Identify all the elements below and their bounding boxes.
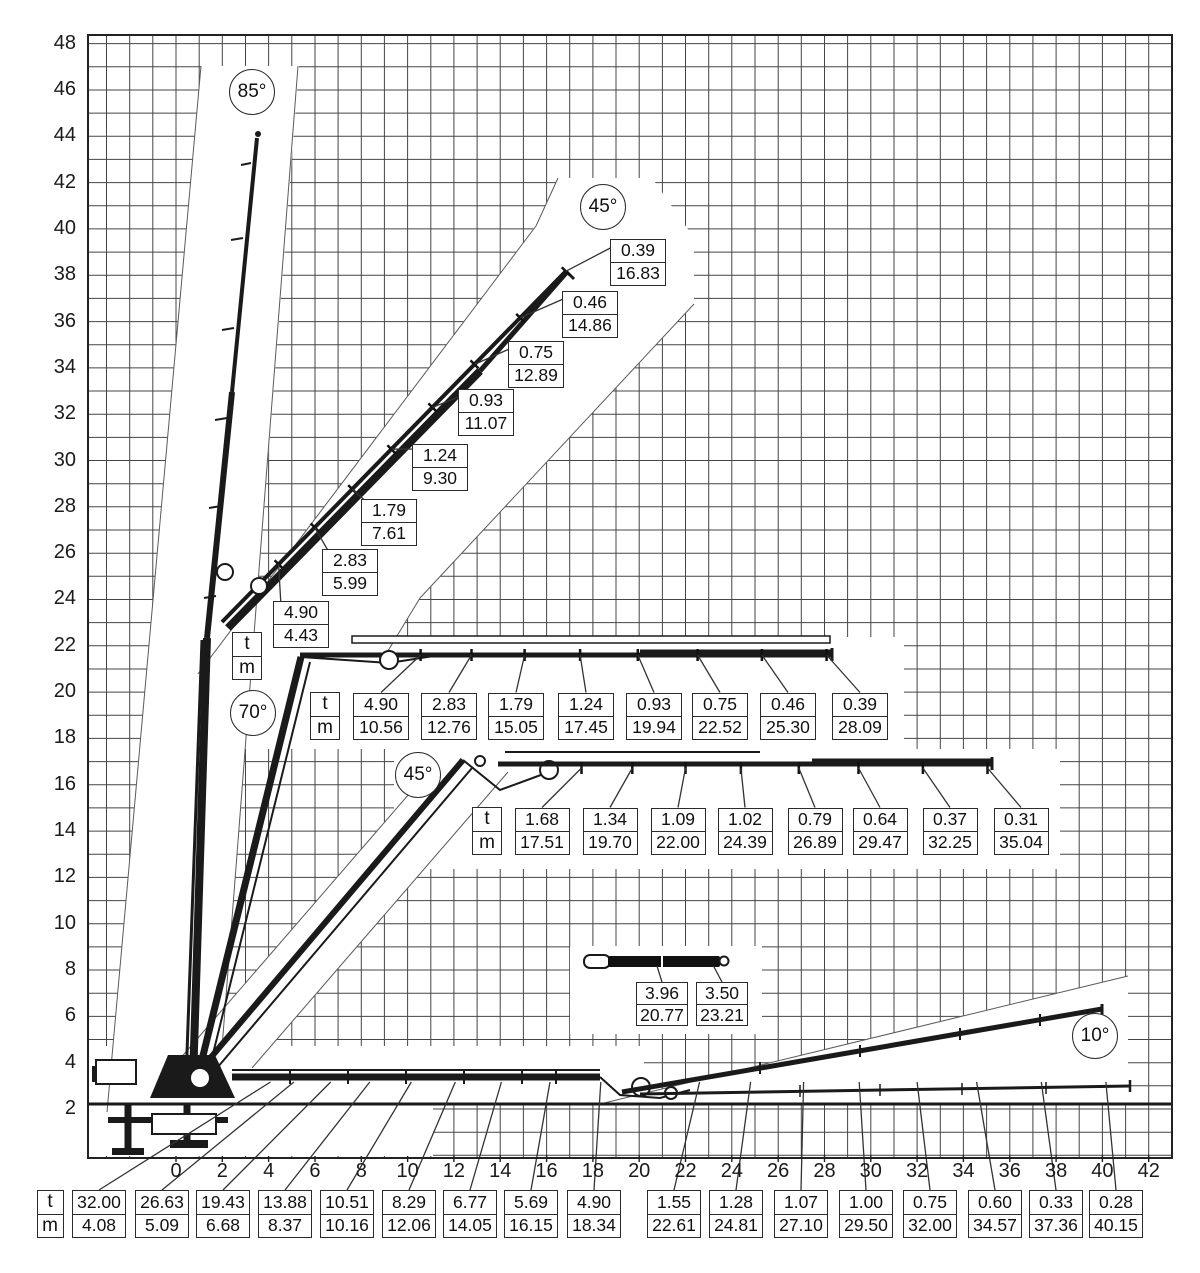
load-box: 3.9620.77 [636, 982, 688, 1026]
load-box: 1.0029.50 [839, 1190, 893, 1238]
load-value-t: 0.75 [693, 694, 747, 717]
y-tick-label: 48 [28, 32, 76, 55]
load-value-m: 23.21 [697, 1005, 747, 1026]
angle-badge: 70° [230, 690, 276, 736]
x-tick-label: 30 [847, 1160, 895, 1183]
load-box: 0.3928.09 [832, 693, 888, 740]
load-value-t: 0.31 [995, 809, 1048, 832]
angle-badge: 45° [395, 752, 441, 798]
load-value-m: 22.52 [693, 717, 747, 739]
angle-badge: 85° [229, 69, 275, 115]
y-tick-label: 26 [28, 541, 76, 564]
load-box: 2.835.99 [322, 549, 378, 596]
load-box: 0.7522.52 [692, 693, 748, 740]
y-tick-label: 34 [28, 356, 76, 379]
load-value-t: 19.43 [197, 1191, 249, 1215]
unit-legend-box: tm [232, 632, 262, 680]
load-value-t: 10.51 [321, 1191, 373, 1215]
load-box: 1.2417.45 [558, 693, 614, 740]
load-value-m: 16.15 [505, 1215, 557, 1238]
load-value-m: 16.83 [611, 263, 665, 285]
x-tick-label: 10 [384, 1160, 432, 1183]
load-value-t: 4.90 [274, 602, 328, 625]
x-tick-label: 18 [569, 1160, 617, 1183]
x-tick-label: 38 [1032, 1160, 1080, 1183]
load-box: 1.3419.70 [583, 808, 638, 855]
y-tick-label: 30 [28, 449, 76, 472]
x-tick-label: 26 [754, 1160, 802, 1183]
load-box: 26.635.09 [135, 1190, 189, 1238]
load-box: 3.5023.21 [696, 982, 748, 1026]
load-value-t: 5.69 [505, 1191, 557, 1215]
load-box: 1.5522.61 [647, 1190, 701, 1238]
load-box: 0.7926.89 [788, 808, 843, 855]
y-tick-label: 36 [28, 310, 76, 333]
load-box: 0.6034.57 [968, 1190, 1022, 1238]
load-value-m: 29.50 [840, 1215, 892, 1238]
load-box: 32.004.08 [72, 1190, 126, 1238]
load-value-m: 29.47 [854, 832, 907, 854]
x-tick-label: 2 [198, 1160, 246, 1183]
x-tick-label: 8 [337, 1160, 385, 1183]
load-box: 4.904.43 [273, 601, 329, 648]
y-tick-label: 8 [28, 958, 76, 981]
load-value-m: 22.00 [652, 832, 705, 854]
load-value-t: 0.39 [611, 240, 665, 263]
load-box: 6.7714.05 [443, 1190, 497, 1238]
load-value-t: 0.46 [761, 694, 815, 717]
load-value-m: 5.09 [136, 1215, 188, 1238]
load-box: 10.5110.16 [320, 1190, 374, 1238]
load-box: 0.4614.86 [562, 291, 618, 338]
load-value-t: 0.75 [904, 1191, 956, 1215]
load-box: 19.436.68 [196, 1190, 250, 1238]
y-tick-label: 38 [28, 263, 76, 286]
load-box: 13.888.37 [258, 1190, 312, 1238]
load-box: 0.4625.30 [760, 693, 816, 740]
load-value-m: 26.89 [789, 832, 842, 854]
load-value-t: 3.96 [637, 983, 687, 1005]
unit-m-label: m [233, 657, 261, 680]
x-tick-label: 34 [939, 1160, 987, 1183]
load-box: 1.0727.10 [774, 1190, 828, 1238]
load-value-m: 9.30 [413, 468, 467, 490]
load-value-t: 1.28 [710, 1191, 762, 1215]
x-tick-label: 0 [152, 1160, 200, 1183]
load-value-m: 12.76 [422, 717, 476, 739]
y-tick-label: 18 [28, 726, 76, 749]
unit-m-label: m [38, 1215, 63, 1238]
load-value-m: 8.37 [259, 1215, 311, 1238]
y-tick-label: 40 [28, 217, 76, 240]
load-value-t: 0.60 [969, 1191, 1021, 1215]
unit-legend-box: tm [37, 1190, 64, 1238]
load-value-t: 1.34 [584, 809, 637, 832]
x-tick-label: 20 [615, 1160, 663, 1183]
x-tick-label: 28 [800, 1160, 848, 1183]
load-value-t: 2.83 [323, 550, 377, 573]
load-value-t: 0.28 [1090, 1191, 1142, 1215]
load-box: 0.9311.07 [458, 389, 514, 436]
angle-badge: 10° [1072, 1013, 1118, 1059]
load-value-m: 22.61 [648, 1215, 700, 1238]
unit-t-label: t [311, 693, 339, 717]
load-box: 1.0922.00 [651, 808, 706, 855]
y-tick-label: 46 [28, 78, 76, 101]
labels-layer: 4846444240383634323028262422201816141210… [0, 0, 1200, 1273]
load-box: 0.7512.89 [508, 341, 564, 388]
unit-legend-box: tm [472, 807, 502, 855]
load-value-m: 12.06 [383, 1215, 435, 1238]
load-box: 0.3916.83 [610, 239, 666, 286]
x-tick-label: 12 [430, 1160, 478, 1183]
load-box: 0.3135.04 [994, 808, 1049, 855]
x-tick-label: 32 [893, 1160, 941, 1183]
load-value-t: 4.90 [568, 1191, 620, 1215]
load-value-m: 32.00 [904, 1215, 956, 1238]
load-value-t: 3.50 [697, 983, 747, 1005]
load-box: 0.3732.25 [923, 808, 978, 855]
x-tick-label: 6 [291, 1160, 339, 1183]
load-value-t: 32.00 [73, 1191, 125, 1215]
x-tick-label: 22 [662, 1160, 710, 1183]
load-value-t: 1.09 [652, 809, 705, 832]
load-value-t: 0.37 [924, 809, 977, 832]
load-value-m: 14.86 [563, 315, 617, 337]
load-value-m: 35.04 [995, 832, 1048, 854]
y-tick-label: 24 [28, 587, 76, 610]
y-tick-label: 4 [28, 1051, 76, 1074]
y-tick-label: 28 [28, 495, 76, 518]
y-tick-label: 10 [28, 912, 76, 935]
load-value-t: 0.93 [627, 694, 681, 717]
load-value-t: 0.46 [563, 292, 617, 315]
load-value-m: 19.94 [627, 717, 681, 739]
load-value-m: 4.43 [274, 625, 328, 647]
load-value-t: 1.24 [559, 694, 613, 717]
load-value-t: 8.29 [383, 1191, 435, 1215]
load-box: 1.797.61 [361, 499, 417, 546]
y-tick-label: 42 [28, 171, 76, 194]
load-box: 0.6429.47 [853, 808, 908, 855]
load-value-m: 4.08 [73, 1215, 125, 1238]
load-value-t: 1.79 [489, 694, 543, 717]
x-tick-label: 14 [476, 1160, 524, 1183]
unit-legend-box: tm [310, 692, 340, 740]
load-box: 1.0224.39 [718, 808, 773, 855]
load-box: 0.2840.15 [1089, 1190, 1143, 1238]
y-tick-label: 44 [28, 124, 76, 147]
load-box: 8.2912.06 [382, 1190, 436, 1238]
y-tick-label: 2 [28, 1097, 76, 1120]
load-value-t: 1.55 [648, 1191, 700, 1215]
load-value-t: 0.64 [854, 809, 907, 832]
load-box: 0.3337.36 [1029, 1190, 1083, 1238]
load-value-m: 25.30 [761, 717, 815, 739]
unit-t-label: t [38, 1191, 63, 1215]
load-value-m: 27.10 [775, 1215, 827, 1238]
load-value-m: 6.68 [197, 1215, 249, 1238]
x-tick-label: 36 [986, 1160, 1034, 1183]
load-value-m: 7.61 [362, 523, 416, 545]
load-box: 1.249.30 [412, 444, 468, 491]
y-tick-label: 20 [28, 680, 76, 703]
unit-m-label: m [473, 832, 501, 855]
y-tick-label: 32 [28, 402, 76, 425]
load-value-m: 32.25 [924, 832, 977, 854]
x-tick-label: 24 [708, 1160, 756, 1183]
load-value-t: 6.77 [444, 1191, 496, 1215]
load-value-m: 24.39 [719, 832, 772, 854]
load-value-m: 40.15 [1090, 1215, 1142, 1238]
unit-t-label: t [473, 808, 501, 832]
load-value-t: 4.90 [354, 694, 408, 717]
unit-t-label: t [233, 633, 261, 657]
load-value-m: 17.51 [516, 832, 569, 854]
x-tick-label: 40 [1078, 1160, 1126, 1183]
load-value-t: 0.93 [459, 390, 513, 413]
load-box: 4.9018.34 [567, 1190, 621, 1238]
y-tick-label: 6 [28, 1004, 76, 1027]
x-tick-label: 4 [245, 1160, 293, 1183]
load-box: 1.2824.81 [709, 1190, 763, 1238]
y-tick-label: 22 [28, 634, 76, 657]
load-value-t: 2.83 [422, 694, 476, 717]
load-value-t: 0.79 [789, 809, 842, 832]
load-value-m: 24.81 [710, 1215, 762, 1238]
load-box: 1.6817.51 [515, 808, 570, 855]
load-box: 1.7915.05 [488, 693, 544, 740]
load-value-t: 26.63 [136, 1191, 188, 1215]
x-tick-label: 16 [523, 1160, 571, 1183]
load-value-m: 28.09 [833, 717, 887, 739]
load-value-t: 0.33 [1030, 1191, 1082, 1215]
load-value-t: 1.00 [840, 1191, 892, 1215]
load-value-m: 15.05 [489, 717, 543, 739]
unit-m-label: m [311, 717, 339, 740]
load-value-t: 1.02 [719, 809, 772, 832]
load-value-m: 34.57 [969, 1215, 1021, 1238]
load-value-m: 20.77 [637, 1005, 687, 1026]
load-box: 2.8312.76 [421, 693, 477, 740]
load-value-t: 1.68 [516, 809, 569, 832]
load-value-t: 1.07 [775, 1191, 827, 1215]
crane-load-diagram: 4846444240383634323028262422201816141210… [0, 0, 1200, 1273]
load-value-m: 10.16 [321, 1215, 373, 1238]
load-box: 0.7532.00 [903, 1190, 957, 1238]
y-tick-label: 14 [28, 819, 76, 842]
load-value-m: 17.45 [559, 717, 613, 739]
load-value-m: 37.36 [1030, 1215, 1082, 1238]
load-value-t: 1.24 [413, 445, 467, 468]
load-box: 0.9319.94 [626, 693, 682, 740]
load-box: 5.6916.15 [504, 1190, 558, 1238]
x-tick-label: 42 [1125, 1160, 1173, 1183]
load-value-t: 1.79 [362, 500, 416, 523]
load-value-m: 19.70 [584, 832, 637, 854]
load-value-t: 0.39 [833, 694, 887, 717]
y-tick-label: 12 [28, 865, 76, 888]
load-value-m: 10.56 [354, 717, 408, 739]
y-tick-label: 16 [28, 773, 76, 796]
load-value-t: 13.88 [259, 1191, 311, 1215]
load-value-m: 14.05 [444, 1215, 496, 1238]
load-value-m: 12.89 [509, 365, 563, 387]
load-value-m: 11.07 [459, 413, 513, 435]
load-value-m: 5.99 [323, 573, 377, 595]
angle-badge: 45° [580, 184, 626, 230]
load-value-t: 0.75 [509, 342, 563, 365]
load-value-m: 18.34 [568, 1215, 620, 1238]
load-box: 4.9010.56 [353, 693, 409, 740]
